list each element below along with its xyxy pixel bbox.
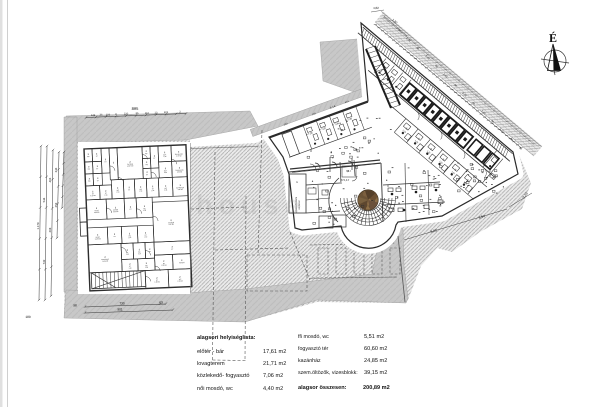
svg-text:ET: ET bbox=[130, 209, 132, 211]
svg-text:149: 149 bbox=[91, 114, 96, 117]
svg-text:ffi mosdó, wc: ffi mosdó, wc bbox=[298, 334, 329, 340]
svg-text:fogyasztó tér: fogyasztó tér bbox=[298, 346, 329, 352]
svg-text:5,51 m2: 5,51 m2 bbox=[364, 334, 384, 340]
svg-text:1,50: 1,50 bbox=[144, 236, 147, 238]
svg-text:42,87 M2: 42,87 M2 bbox=[127, 165, 133, 167]
svg-text:9,87 M2: 9,87 M2 bbox=[169, 224, 174, 226]
svg-text:WC: WC bbox=[88, 180, 90, 182]
svg-text:180: 180 bbox=[25, 315, 31, 319]
svg-text:200,89 m2: 200,89 m2 bbox=[363, 385, 390, 391]
svg-text:alagsor összesen:: alagsor összesen: bbox=[298, 384, 347, 391]
svg-text:szem.öltözők, vizesblokk:: szem.öltözők, vizesblokk: bbox=[298, 370, 358, 376]
svg-text:WC: WC bbox=[87, 156, 89, 158]
svg-text:ET: ET bbox=[154, 158, 156, 160]
svg-text:5,17: 5,17 bbox=[346, 170, 352, 173]
svg-text:5,10 M2: 5,10 M2 bbox=[90, 195, 95, 197]
svg-text:5,00 M2: 5,00 M2 bbox=[113, 211, 118, 213]
svg-text:4,50 M2: 4,50 M2 bbox=[178, 189, 183, 191]
svg-text:1,50: 1,50 bbox=[143, 210, 146, 212]
svg-text:7,06 m2: 7,06 m2 bbox=[263, 373, 283, 379]
svg-text:kazánház: kazánház bbox=[298, 358, 321, 364]
svg-text:4,50: 4,50 bbox=[164, 172, 167, 174]
svg-text:lovagterem: lovagterem bbox=[197, 360, 225, 367]
svg-text:14,26 M2: 14,26 M2 bbox=[95, 238, 101, 240]
svg-text:1,50: 1,50 bbox=[128, 237, 131, 239]
svg-text:közlekedő- fogyasztó: közlekedő- fogyasztó bbox=[197, 372, 250, 379]
svg-text:4,40 m2: 4,40 m2 bbox=[263, 386, 283, 392]
svg-text:544: 544 bbox=[42, 197, 46, 202]
svg-text:ET: ET bbox=[171, 249, 173, 251]
svg-text:ET: ET bbox=[146, 174, 148, 176]
svg-text:4,75: 4,75 bbox=[163, 156, 166, 158]
svg-text:110: 110 bbox=[145, 112, 150, 115]
svg-text:1,50: 1,50 bbox=[105, 194, 108, 196]
svg-text:63: 63 bbox=[159, 301, 163, 305]
svg-text:2,45: 2,45 bbox=[164, 189, 167, 191]
svg-text:221: 221 bbox=[164, 111, 169, 114]
svg-text:ET: ET bbox=[96, 156, 98, 158]
svg-text:ET: ET bbox=[97, 180, 99, 182]
svg-text:4,75 M2: 4,75 M2 bbox=[176, 155, 181, 157]
svg-text:732: 732 bbox=[42, 259, 46, 264]
svg-text:106: 106 bbox=[106, 113, 111, 116]
svg-text:1,50: 1,50 bbox=[139, 190, 142, 192]
svg-text:1,50: 1,50 bbox=[116, 191, 119, 193]
svg-text:WC: WC bbox=[145, 153, 147, 155]
svg-text:1,38 M2: 1,38 M2 bbox=[161, 265, 166, 267]
svg-text:24,85 m2: 24,85 m2 bbox=[364, 358, 387, 364]
svg-text:14,26 M2: 14,26 M2 bbox=[102, 260, 108, 262]
svg-text:730: 730 bbox=[119, 302, 125, 306]
svg-text:1,38 M2: 1,38 M2 bbox=[155, 281, 160, 283]
svg-text:1,06: 1,06 bbox=[129, 268, 132, 270]
svg-text:253: 253 bbox=[54, 202, 58, 207]
svg-text:406: 406 bbox=[48, 177, 52, 182]
svg-text:2,45: 2,45 bbox=[126, 254, 129, 256]
svg-text:alagsori helyiséglista:: alagsori helyiséglista: bbox=[197, 334, 256, 341]
svg-text:208: 208 bbox=[48, 227, 52, 232]
svg-text:ET: ET bbox=[128, 189, 130, 191]
svg-text:É: É bbox=[549, 31, 557, 45]
svg-text:1.178: 1.178 bbox=[36, 222, 40, 229]
svg-text:előtér - bár: előtér - bár bbox=[197, 348, 224, 355]
svg-text:895: 895 bbox=[132, 106, 139, 111]
svg-text:6 5,17: 6 5,17 bbox=[341, 178, 350, 182]
svg-text:17,61 m2: 17,61 m2 bbox=[263, 349, 286, 355]
svg-text:house: house bbox=[196, 190, 306, 220]
svg-text:női mosdó, wc: női mosdó, wc bbox=[197, 385, 233, 392]
svg-text:ET: ET bbox=[105, 161, 107, 163]
svg-text:ET: ET bbox=[96, 168, 98, 170]
svg-text:1,50: 1,50 bbox=[151, 190, 154, 192]
svg-text:6,50 M2: 6,50 M2 bbox=[177, 171, 182, 173]
svg-text:901: 901 bbox=[117, 308, 123, 312]
svg-text:39,15 m2: 39,15 m2 bbox=[364, 370, 387, 376]
svg-text:2,16 M2: 2,16 M2 bbox=[177, 280, 182, 282]
svg-text:4,82: 4,82 bbox=[373, 6, 379, 10]
svg-text:1,38: 1,38 bbox=[145, 267, 148, 269]
svg-text:2,16: 2,16 bbox=[138, 253, 141, 255]
svg-text:60,60 m2: 60,60 m2 bbox=[364, 346, 387, 352]
svg-text:WC: WC bbox=[145, 164, 147, 166]
svg-text:220: 220 bbox=[124, 113, 129, 116]
svg-text:346: 346 bbox=[54, 167, 58, 172]
svg-text:4,50 M2: 4,50 M2 bbox=[94, 212, 99, 214]
svg-text:ET: ET bbox=[114, 236, 116, 238]
svg-text:WC: WC bbox=[88, 168, 90, 170]
svg-text:98: 98 bbox=[73, 304, 77, 308]
svg-text:21,71 m2: 21,71 m2 bbox=[263, 361, 286, 367]
